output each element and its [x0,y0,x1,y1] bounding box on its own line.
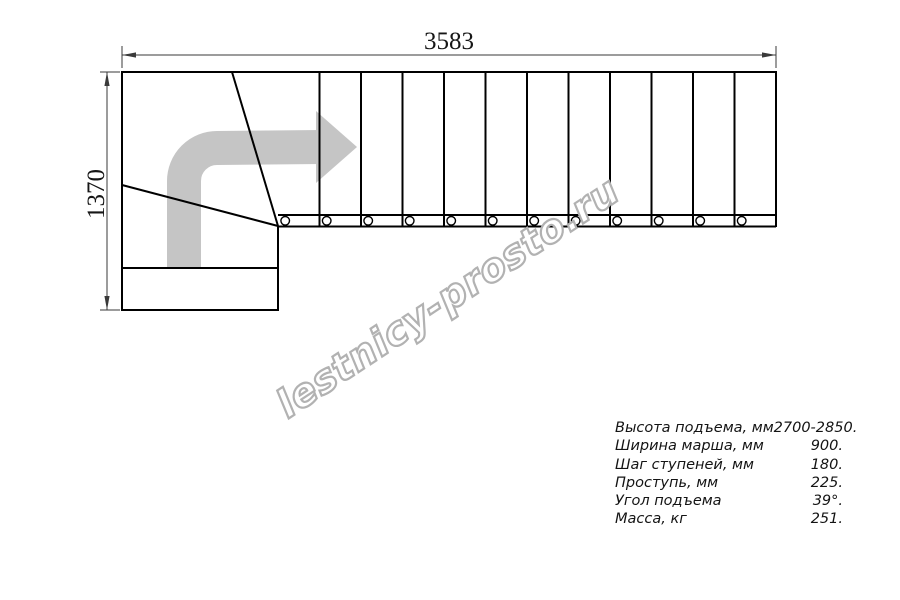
baluster-circle [364,217,373,226]
specs-table: Высота подъема, мм 2700-2850. Ширина мар… [615,419,843,529]
baluster-circle [281,217,290,226]
step-lines [320,72,735,227]
balusters [281,217,746,226]
baluster-circle [654,217,663,226]
dim-arrow-right-icon [762,52,776,57]
spec-row: Ширина марша, мм 900. [615,437,843,455]
spec-row: Масса, кг 251. [615,510,843,528]
baluster-circle [696,217,705,226]
spec-label: Высота подъема, мм [615,419,774,437]
spec-row: Проступь, мм 225. [615,474,843,492]
spec-label: Масса, кг [615,510,687,528]
baluster-circle [405,217,414,226]
baluster-circle [447,217,456,226]
dim-arrow-left-icon [122,52,136,57]
baluster-circle [737,217,746,226]
spec-row: Шаг ступеней, мм 180. [615,456,843,474]
spec-label: Ширина марша, мм [615,437,764,455]
dim-arrow-bottom-icon [104,296,109,310]
baluster-circle [322,217,331,226]
spec-value: 39°. [813,492,843,510]
spec-value: 900. [811,437,843,455]
dimensions [100,46,776,310]
dim-width-label: 3583 [424,28,474,56]
dim-extension-lines [100,46,776,310]
spec-value: 251. [811,510,843,528]
direction-arrow-head [316,111,357,183]
direction-arrow [184,111,357,267]
spec-value: 225. [811,474,843,492]
dim-arrowheads [104,52,776,310]
spec-label: Угол подъема [615,492,722,510]
drawing-canvas: 3583 1370 lestnicy-prosto.ru Высота подъ… [0,0,900,600]
dim-arrow-top-icon [104,72,109,86]
spec-row: Угол подъема 39°. [615,492,843,510]
spec-label: Проступь, мм [615,474,718,492]
baluster-circle [613,217,622,226]
spec-value: 2700-2850. [774,419,858,437]
spec-label: Шаг ступеней, мм [615,456,754,474]
spec-row: Высота подъема, мм 2700-2850. [615,419,843,437]
baluster-circle [488,217,497,226]
dim-height-label: 1370 [83,169,111,219]
spec-value: 180. [811,456,843,474]
